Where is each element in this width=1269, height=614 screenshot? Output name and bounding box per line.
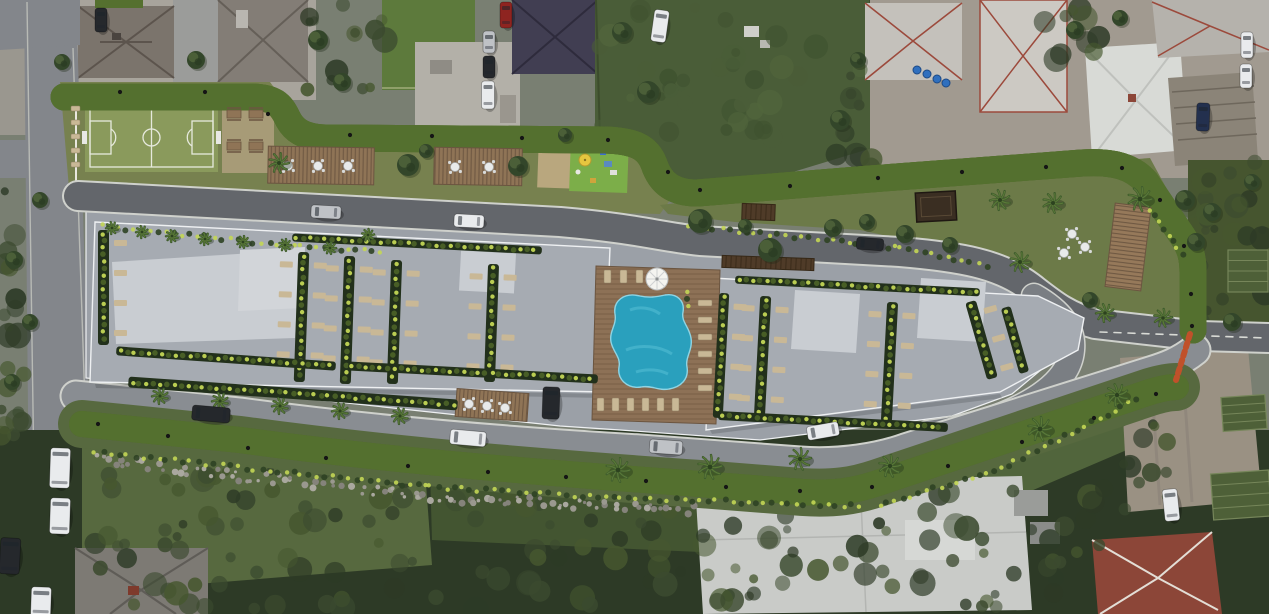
shrub — [1048, 439, 1054, 445]
shrub — [538, 490, 542, 494]
cafe-table — [465, 400, 474, 409]
vegetation-blob — [98, 526, 117, 545]
shrub — [307, 244, 313, 250]
chair — [342, 170, 345, 173]
vegetation-blob — [158, 523, 171, 536]
stone — [184, 472, 189, 477]
vegetation-blob — [159, 474, 171, 486]
light-post — [1120, 166, 1124, 170]
shrub — [101, 449, 107, 455]
stone — [375, 485, 380, 490]
light-post — [246, 446, 250, 450]
vegetation-blob — [1142, 463, 1161, 482]
picnic-table — [249, 142, 263, 150]
shrub — [483, 486, 489, 492]
sun-lounger — [698, 368, 712, 374]
shrub — [524, 491, 528, 495]
shrub — [452, 484, 458, 490]
shrub — [305, 472, 311, 478]
light-post — [203, 90, 207, 94]
shrub — [210, 461, 216, 467]
stone — [403, 495, 406, 498]
barrel — [933, 75, 941, 83]
shrub — [817, 503, 823, 509]
shrub — [156, 229, 162, 235]
shrub — [985, 264, 991, 270]
vegetation-blob — [1231, 197, 1247, 213]
shrub — [109, 452, 113, 456]
shrub — [338, 248, 344, 254]
chair — [1076, 237, 1079, 240]
chair — [1065, 228, 1068, 231]
shrub — [346, 247, 350, 251]
hedge — [95, 0, 143, 8]
shrub — [506, 488, 510, 492]
light-post — [1158, 198, 1162, 202]
shrub — [148, 454, 154, 460]
vegetation-blob — [635, 517, 646, 528]
vegetation-blob — [775, 576, 790, 591]
vegetation-blob — [1201, 173, 1216, 188]
vegetation-blob — [236, 490, 256, 510]
stone — [498, 498, 501, 501]
shrub — [100, 222, 104, 226]
shrub — [259, 241, 263, 245]
vegetation-blob — [731, 48, 740, 57]
stone — [601, 499, 607, 505]
light-post — [96, 422, 100, 426]
shrub — [738, 501, 744, 507]
vegetation-blob — [1044, 47, 1069, 72]
vegetation-blob — [374, 538, 384, 548]
shrub — [727, 226, 733, 232]
sun-lounger — [627, 398, 634, 411]
shrub — [683, 497, 687, 501]
vegetation-blob — [919, 529, 940, 550]
stone — [438, 499, 442, 503]
vegetation-blob — [1223, 166, 1236, 179]
vegetation-blob — [172, 483, 186, 497]
shrub — [492, 487, 496, 491]
light-post — [1020, 440, 1024, 444]
vegetation-blob — [1158, 433, 1176, 451]
light-post — [666, 170, 670, 174]
vegetation-blob — [721, 124, 733, 136]
sun-lounger — [597, 398, 604, 411]
goal — [82, 131, 87, 144]
vegetation-blob — [885, 578, 901, 594]
shrub — [999, 465, 1003, 469]
shrub — [1180, 252, 1186, 258]
shrub — [236, 464, 240, 468]
stone — [270, 480, 276, 486]
light-post — [870, 485, 874, 489]
vegetation-blob — [846, 535, 869, 558]
shrub — [321, 474, 327, 480]
light-post — [348, 133, 352, 137]
shrub — [947, 255, 951, 259]
vegetation-blob — [518, 571, 541, 594]
shrub — [180, 460, 186, 466]
stone — [156, 460, 163, 467]
vegetation-blob — [198, 506, 218, 526]
light-post — [724, 485, 728, 489]
sun-lounger — [114, 330, 127, 336]
light-post — [520, 136, 524, 140]
stone — [234, 470, 237, 473]
shrub — [499, 487, 505, 493]
stone — [526, 501, 533, 508]
stone — [538, 496, 542, 500]
vegetation-blob — [677, 95, 692, 110]
vegetation-blob — [677, 74, 691, 88]
garden-bed — [1228, 250, 1268, 292]
vegetation-blob — [745, 70, 764, 89]
shrub — [203, 463, 207, 467]
light-post — [1092, 416, 1096, 420]
vegetation-blob — [804, 34, 828, 58]
shrub — [580, 494, 586, 500]
shrub — [355, 477, 361, 483]
shrub — [783, 233, 787, 237]
sun-lounger — [501, 334, 514, 340]
shrub — [595, 495, 601, 501]
shrub — [779, 501, 783, 505]
stone — [453, 500, 456, 503]
stone — [649, 503, 652, 506]
sun-lounger — [71, 134, 80, 139]
sun-lounger — [467, 333, 480, 339]
shrub — [962, 476, 968, 482]
stone — [636, 505, 641, 510]
light-post — [486, 470, 490, 474]
shrub — [883, 499, 889, 505]
vegetation-blob — [362, 515, 375, 528]
shrub — [91, 450, 95, 454]
light-post — [946, 464, 950, 468]
sun-lounger — [373, 269, 386, 275]
shrub — [674, 495, 680, 501]
vegetation-blob — [1119, 503, 1131, 515]
stone — [415, 495, 420, 500]
stone — [362, 485, 366, 489]
chair — [492, 160, 495, 163]
vegetation-blob — [881, 526, 891, 536]
shrub — [901, 496, 907, 502]
vegetation-blob — [188, 577, 202, 591]
vegetation-blob — [391, 554, 410, 573]
shrub — [959, 258, 963, 262]
shrub — [297, 472, 301, 476]
shrub — [1006, 463, 1012, 469]
vegetation-blob — [1119, 455, 1142, 478]
stone — [118, 457, 125, 464]
stone — [145, 466, 151, 472]
stone — [301, 481, 308, 488]
vegetation-blob — [211, 576, 228, 593]
stone — [382, 489, 388, 495]
sun-lounger — [470, 273, 483, 279]
shrub — [436, 484, 442, 490]
shrub — [1082, 425, 1086, 429]
chair — [491, 409, 494, 412]
vegetation-blob — [385, 506, 399, 520]
chair — [1067, 246, 1070, 249]
chair — [351, 159, 354, 162]
shrub — [732, 500, 736, 504]
sun-lounger — [502, 304, 515, 310]
sun-lounger — [114, 270, 127, 276]
shrub — [897, 245, 901, 249]
light-post — [606, 138, 610, 142]
stone — [586, 501, 592, 507]
sun-lounger — [737, 395, 750, 402]
chair — [459, 170, 462, 173]
shrub — [977, 472, 983, 478]
vegetation-blob — [854, 563, 877, 586]
sun-lounger — [114, 300, 127, 306]
sun-lounger — [372, 299, 385, 305]
vegetation-blob — [1210, 225, 1218, 233]
light-post — [1182, 244, 1186, 248]
shrub — [378, 250, 382, 254]
shrub — [285, 470, 289, 474]
stone — [360, 492, 364, 496]
shrub — [689, 499, 695, 505]
shrub — [196, 459, 202, 465]
picnic-table — [227, 142, 241, 150]
vegetation-blob — [876, 565, 890, 579]
vegetation-blob — [1095, 479, 1113, 497]
shrub — [799, 234, 803, 238]
shrub — [966, 259, 972, 265]
vegetation-blob — [365, 83, 375, 93]
shrub — [360, 477, 364, 481]
light-post — [324, 456, 328, 460]
shrub — [929, 251, 933, 255]
vegetation-blob — [300, 8, 319, 27]
sun-lounger — [71, 106, 80, 111]
shrub — [857, 505, 861, 509]
shrub — [984, 471, 988, 475]
chair — [1075, 227, 1078, 230]
vegetation-blob — [392, 487, 413, 508]
stone — [470, 500, 476, 506]
pool-umbrella — [646, 268, 668, 290]
shrub — [346, 476, 350, 480]
shrub — [1113, 409, 1117, 413]
shrub — [769, 500, 775, 506]
sun-lounger — [312, 322, 325, 328]
shrub — [1075, 428, 1081, 434]
sun-lounger — [741, 305, 754, 312]
shrub — [753, 500, 759, 506]
sun-lounger — [323, 355, 336, 361]
stone — [557, 506, 561, 510]
vegetation-blob — [1247, 155, 1262, 170]
shrub — [298, 243, 302, 247]
sun-lounger — [358, 326, 371, 332]
vegetation-blob — [1, 187, 9, 195]
light-post — [960, 170, 964, 174]
picnic-table — [227, 110, 241, 118]
stone — [516, 498, 522, 504]
roof-skylight — [791, 290, 860, 353]
vegetation-blob — [249, 603, 261, 614]
vegetation-blob — [173, 532, 182, 541]
chair — [472, 397, 475, 400]
vegetation-blob — [467, 511, 484, 528]
sun-lounger — [612, 398, 619, 411]
vegetation-blob — [372, 27, 398, 53]
vegetation-blob — [1034, 11, 1056, 33]
stone — [651, 506, 657, 512]
barrel — [913, 66, 921, 74]
vegetation-blob — [5, 288, 26, 309]
vegetation-blob — [1093, 539, 1105, 551]
shrub — [517, 490, 523, 496]
shrub — [1174, 246, 1178, 250]
site-plan-svg — [0, 0, 1269, 614]
shrub — [274, 243, 278, 247]
shrub — [761, 501, 765, 505]
shrub — [922, 249, 928, 255]
sun-lounger — [740, 335, 753, 342]
shrub — [274, 470, 280, 476]
vegetation-blob — [603, 546, 628, 571]
stone — [256, 479, 259, 482]
vegetation-blob — [787, 546, 798, 557]
stone — [177, 469, 184, 476]
shrub — [1133, 397, 1139, 403]
sun-lounger — [868, 311, 881, 318]
chair — [1057, 247, 1060, 250]
stone — [570, 505, 576, 511]
stone — [125, 462, 130, 467]
shrub — [697, 498, 701, 502]
vegetation-blob — [637, 61, 656, 80]
vegetation-blob — [696, 529, 710, 543]
shrub — [951, 257, 957, 263]
vegetation-blob — [745, 591, 754, 600]
shrub — [723, 497, 729, 503]
sun-lounger — [468, 303, 481, 309]
shrub — [368, 248, 374, 254]
sun-lounger — [406, 300, 419, 306]
vegetation-blob — [1038, 558, 1057, 577]
shrub — [824, 237, 830, 243]
shrub — [117, 452, 123, 458]
vegetation-blob — [550, 549, 567, 566]
chair — [463, 408, 466, 411]
shrub — [1148, 208, 1152, 212]
vegetation-blob — [574, 538, 591, 555]
timber-fence — [742, 203, 776, 220]
house-roof-nw2 — [218, 0, 308, 82]
vegetation-blob — [757, 90, 782, 115]
shrub — [908, 495, 912, 499]
vegetation-blob — [529, 549, 546, 566]
vegetation-blob — [675, 566, 686, 577]
light-post — [430, 134, 434, 138]
vegetation-blob — [734, 96, 750, 112]
shrub — [1152, 212, 1158, 218]
light-post — [644, 479, 648, 483]
vegetation-blob — [979, 548, 989, 558]
light-post — [266, 112, 270, 116]
vegetation-blob — [807, 559, 829, 581]
stone — [102, 454, 106, 458]
shrub — [250, 468, 254, 472]
chair — [449, 171, 452, 174]
shrub — [885, 246, 891, 252]
stone — [182, 465, 188, 471]
sun-lounger — [775, 307, 788, 314]
stone — [390, 486, 394, 490]
vegetation-blob — [757, 526, 781, 550]
vegetation-blob — [770, 55, 794, 79]
barrel — [923, 70, 931, 78]
sun-lounger — [902, 313, 915, 320]
stone — [196, 467, 200, 471]
sun-lounger — [898, 402, 911, 409]
chair — [462, 398, 465, 401]
shrub — [712, 497, 716, 501]
shrub — [588, 493, 592, 497]
vegetation-blob — [1007, 485, 1020, 498]
stone — [540, 502, 547, 509]
shrub — [352, 247, 358, 253]
chair — [292, 169, 295, 172]
shrub — [268, 469, 272, 473]
futsal-field — [82, 103, 221, 172]
garden-bed — [1210, 470, 1269, 520]
chair — [311, 160, 314, 163]
sun-lounger — [899, 373, 912, 380]
vegetation-blob — [428, 590, 443, 605]
picnic-table — [249, 110, 263, 118]
vegetation-blob — [1133, 428, 1153, 448]
shrub — [459, 485, 463, 489]
shrub — [757, 229, 763, 235]
sun-lounger — [359, 296, 372, 302]
stone — [488, 496, 495, 503]
chair — [291, 159, 294, 162]
light-post — [1190, 324, 1194, 328]
shrub — [839, 238, 845, 244]
stone — [320, 480, 326, 486]
stone — [312, 478, 319, 485]
vegetation-blob — [718, 12, 734, 28]
stone — [685, 510, 692, 517]
shrub — [314, 245, 318, 249]
shrub — [848, 241, 852, 245]
shrub — [186, 231, 192, 237]
shrub — [784, 501, 790, 507]
shrub — [394, 480, 398, 484]
vegetation-blob — [846, 71, 855, 80]
vegetation-blob — [475, 565, 489, 579]
sun-lounger — [279, 291, 292, 297]
shrub — [684, 296, 690, 302]
vegetation-blob — [550, 539, 560, 549]
shrub — [221, 462, 225, 466]
shrub — [123, 452, 127, 456]
shrub — [131, 227, 135, 231]
vegetation-blob — [664, 83, 678, 97]
sun-lounger — [314, 262, 327, 268]
shrub — [244, 467, 250, 473]
